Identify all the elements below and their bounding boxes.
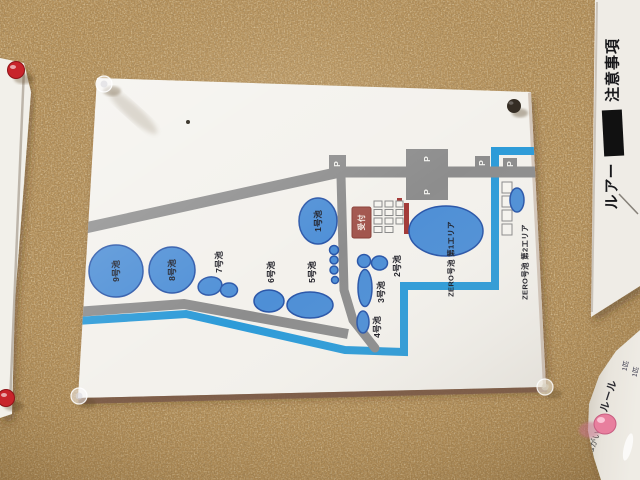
pink-pin-highlight bbox=[597, 417, 605, 423]
red-pushpin-bottom-icon bbox=[0, 390, 15, 407]
clear-pin-core-br bbox=[542, 384, 549, 391]
black-pushpin-icon bbox=[507, 99, 521, 113]
black-pin-highlight bbox=[509, 101, 514, 105]
red-pin-highlight-bottom bbox=[1, 393, 7, 397]
map-content: P P P P P 受付 bbox=[76, 78, 546, 398]
caution-sign-title: 注意事項 bbox=[604, 38, 622, 102]
right-caution-sign: 注意事項 ルアー bbox=[591, 0, 640, 317]
corkboard-photo-scene: 注意事項 ルアー 1匹 1匹 ルール おねがい bbox=[0, 0, 640, 480]
pond-map-sheet: P P P P P 受付 bbox=[71, 76, 562, 408]
caution-sign-word: ルアー bbox=[604, 162, 621, 209]
caution-sign-redaction-block bbox=[602, 110, 624, 157]
scene-canvas: 注意事項 ルアー 1匹 1匹 ルール おねがい bbox=[0, 0, 640, 480]
red-pin-highlight-top bbox=[10, 65, 16, 69]
clear-pin-core-tl bbox=[101, 81, 108, 88]
paper-speck bbox=[186, 120, 190, 124]
pink-pushpin-icon bbox=[594, 414, 616, 434]
red-pushpin-top-icon bbox=[8, 62, 25, 79]
clear-pin-core-bl bbox=[76, 393, 83, 400]
